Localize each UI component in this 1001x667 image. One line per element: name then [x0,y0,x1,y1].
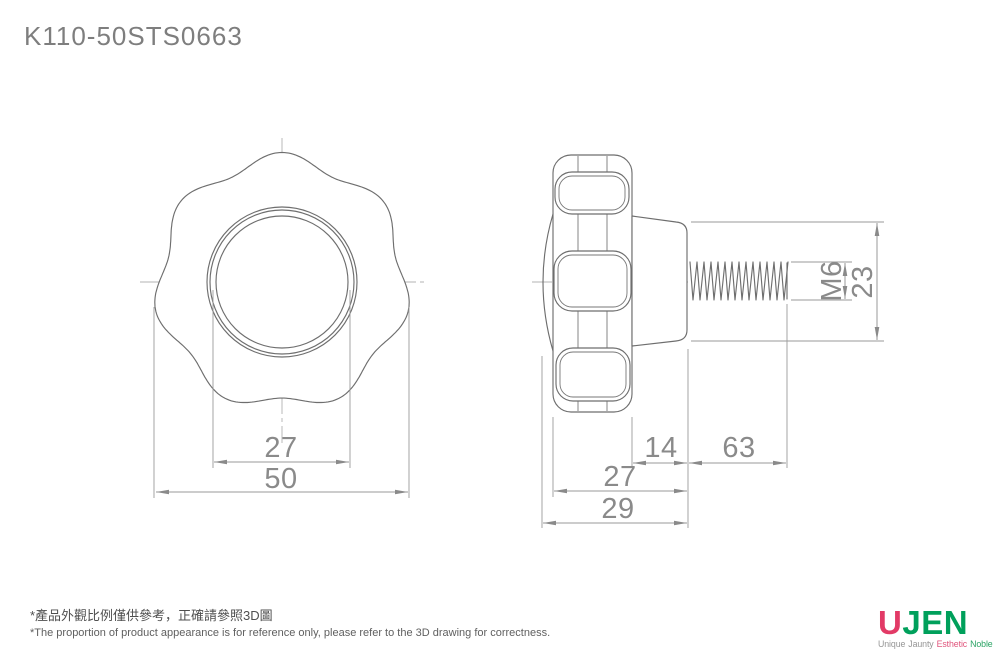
dim-label-27-front: 27 [264,432,297,464]
front-view: 27 50 [140,138,424,498]
disclaimer-notes: *產品外觀比例僅供參考，正確請參照3D圖 *The proportion of … [30,608,550,639]
hub-boss-profile [632,216,687,346]
dim-label-m6: M6 [816,260,848,301]
side-dim-body-depth: 27 [554,461,687,493]
lobe-bottom-outer [556,348,630,401]
side-dim-hub-protrusion: 14 [633,432,687,464]
tagline-esthetic: Esthetic [937,639,968,649]
part-number-title: K110-50STS0663 [24,21,243,51]
note-chinese: *產品外觀比例僅供參考，正確請參照3D圖 [30,608,273,623]
side-dim-thread-length: 63 [689,432,786,464]
side-dim-thread-spec: M6 [816,260,848,301]
front-dim-inner-circle: 27 [214,432,349,464]
thread-zigzag [690,262,788,300]
side-lobes [554,172,631,401]
dim-label-14: 14 [644,432,677,464]
dim-label-50-front: 50 [264,463,297,495]
tagline-unique: Unique [878,639,905,649]
logo-letters-jen: JEN [902,604,968,641]
lobe-top-outer [555,172,629,214]
side-view: 14 63 27 29 M6 23 [532,155,884,528]
tagline-jaunty: Jaunty [908,639,934,649]
logo-letter-u: U [878,604,902,641]
side-dim-overall-depth: 29 [543,493,687,525]
technical-drawing-canvas: K110-50STS0663 27 50 [0,0,1001,667]
dim-label-29: 29 [601,493,634,525]
note-english: *The proportion of product appearance is… [30,627,550,639]
ujen-logo: UJEN UniqueJauntyEstheticNoble [878,604,993,649]
lobe-middle-outer [554,251,631,311]
logo-wordmark: UJEN [878,604,968,641]
tagline-noble: Noble [970,639,993,649]
knob-lobed-outline [155,153,409,403]
side-dim-hub-diameter: 23 [847,223,879,340]
front-dim-outer-diameter: 50 [156,463,408,495]
drawing-page: K110-50STS0663 27 50 [0,0,1001,667]
dim-label-27-side: 27 [603,461,636,493]
dim-label-63: 63 [722,432,755,464]
knob-crown-arc [543,214,553,351]
dim-label-23: 23 [847,265,879,298]
